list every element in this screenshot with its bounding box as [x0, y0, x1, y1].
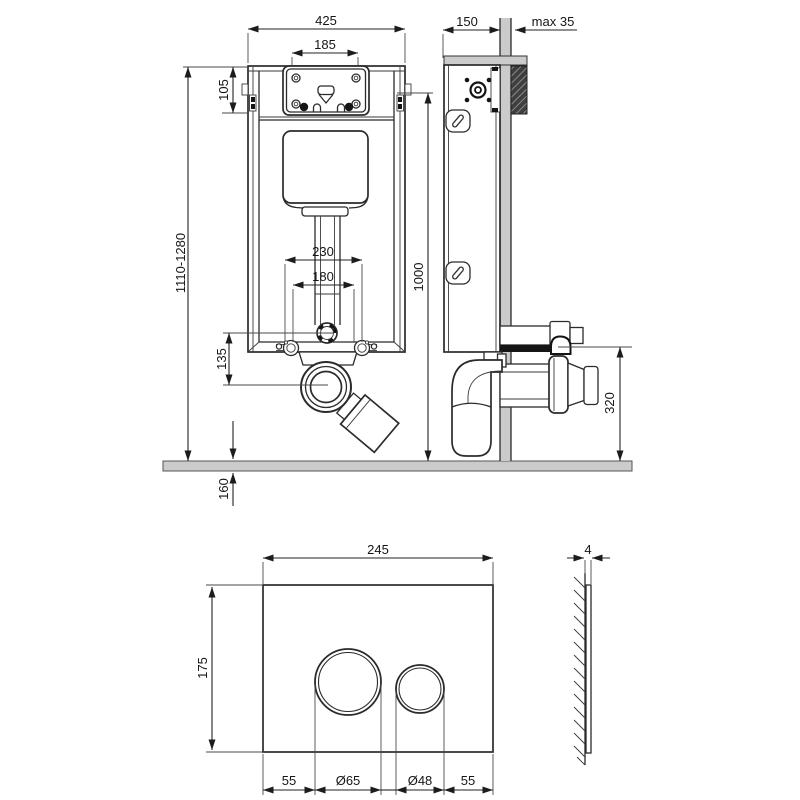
dim-wall-finish-max: max 35: [515, 14, 577, 30]
outlet-cone: [568, 363, 584, 406]
dim-label-bolt-inner: 180: [312, 269, 334, 284]
flush-plate-front-view: 245 175 55 Ø65 Ø48 55: [195, 542, 493, 795]
plate-profile: [586, 585, 591, 753]
dim-label-plate-margin-right: 55: [461, 773, 475, 788]
wall-hatching: [574, 573, 585, 765]
frame-side-view: 150 max 35 320: [443, 14, 632, 461]
waste-outlet-assembly: [500, 356, 598, 413]
dim-label-frame-height: 1000: [411, 263, 426, 292]
fixing-tab-upper: [446, 110, 470, 132]
dim-label-drain-outlet-height: 320: [602, 392, 617, 414]
dim-label-plate-width: 245: [367, 542, 389, 557]
dim-label-wall-finish-max: max 35: [532, 14, 575, 29]
dim-access-opening-width: 185: [292, 37, 358, 65]
tank-outlet-flange: [302, 207, 348, 216]
dim-installation-height: 1110-1280: [173, 67, 188, 461]
top-rail-section: [444, 56, 527, 65]
left-rail-bracket: [250, 95, 257, 111]
floor-line: [163, 461, 632, 471]
dim-label-plate-thickness: 4: [584, 542, 591, 557]
dim-plate-width: 245: [263, 542, 493, 584]
p-trap: [452, 352, 506, 456]
right-rail-bracket: [397, 95, 404, 111]
dim-label-frame-width: 425: [315, 13, 337, 28]
wall-finish-block: [511, 66, 527, 114]
dim-label-drain-offset: 135: [214, 348, 229, 370]
flush-bend-assembly: [500, 322, 583, 355]
technical-drawing-page: 425 185 105 1110-1280 230 180: [0, 0, 800, 800]
dim-label-plate-height: 175: [195, 657, 210, 679]
installation-diagram: 425 185 105 1110-1280 230 180: [0, 0, 800, 800]
dim-label-access-height: 105: [216, 79, 231, 101]
flush-pipe-section: [500, 345, 552, 352]
dim-access-opening-height: 105: [183, 67, 248, 113]
dim-label-access-width: 185: [314, 37, 336, 52]
fixing-plug-right: [345, 103, 353, 111]
flush-button-small: [396, 665, 444, 713]
cistern-tank: [283, 131, 368, 216]
service-opening-box: [283, 66, 369, 115]
dim-label-bolt-outer: 230: [312, 244, 334, 259]
drain-elbow: [301, 362, 399, 452]
dim-label-button-large-dia: Ø65: [336, 773, 361, 788]
dim-label-plate-margin-left: 55: [282, 773, 296, 788]
dim-frame-depth: 150: [443, 14, 500, 58]
dim-label-frame-depth: 150: [456, 14, 478, 29]
dim-label-floor-buildup: 160: [216, 478, 231, 500]
flush-plate-side-view: 4: [567, 542, 610, 765]
dim-label-button-small-dia: Ø48: [408, 773, 433, 788]
left-side-clip: [242, 84, 248, 95]
frame-front-view: 425 185 105 1110-1280 230 180: [173, 13, 433, 506]
dim-plate-height: 175: [195, 585, 262, 752]
wall-mount-bracket: [491, 67, 500, 112]
fixing-tab-lower: [446, 262, 470, 284]
valve-knob: [570, 328, 583, 344]
flush-button-large: [315, 649, 381, 715]
fixing-plug-left: [300, 103, 308, 111]
dim-label-installation-height: 1110-1280: [173, 233, 188, 293]
outlet-end-sleeve: [584, 367, 598, 405]
dim-plate-thickness: 4: [567, 542, 610, 584]
bend-connector: [551, 337, 571, 355]
outlet-flange: [549, 356, 568, 413]
